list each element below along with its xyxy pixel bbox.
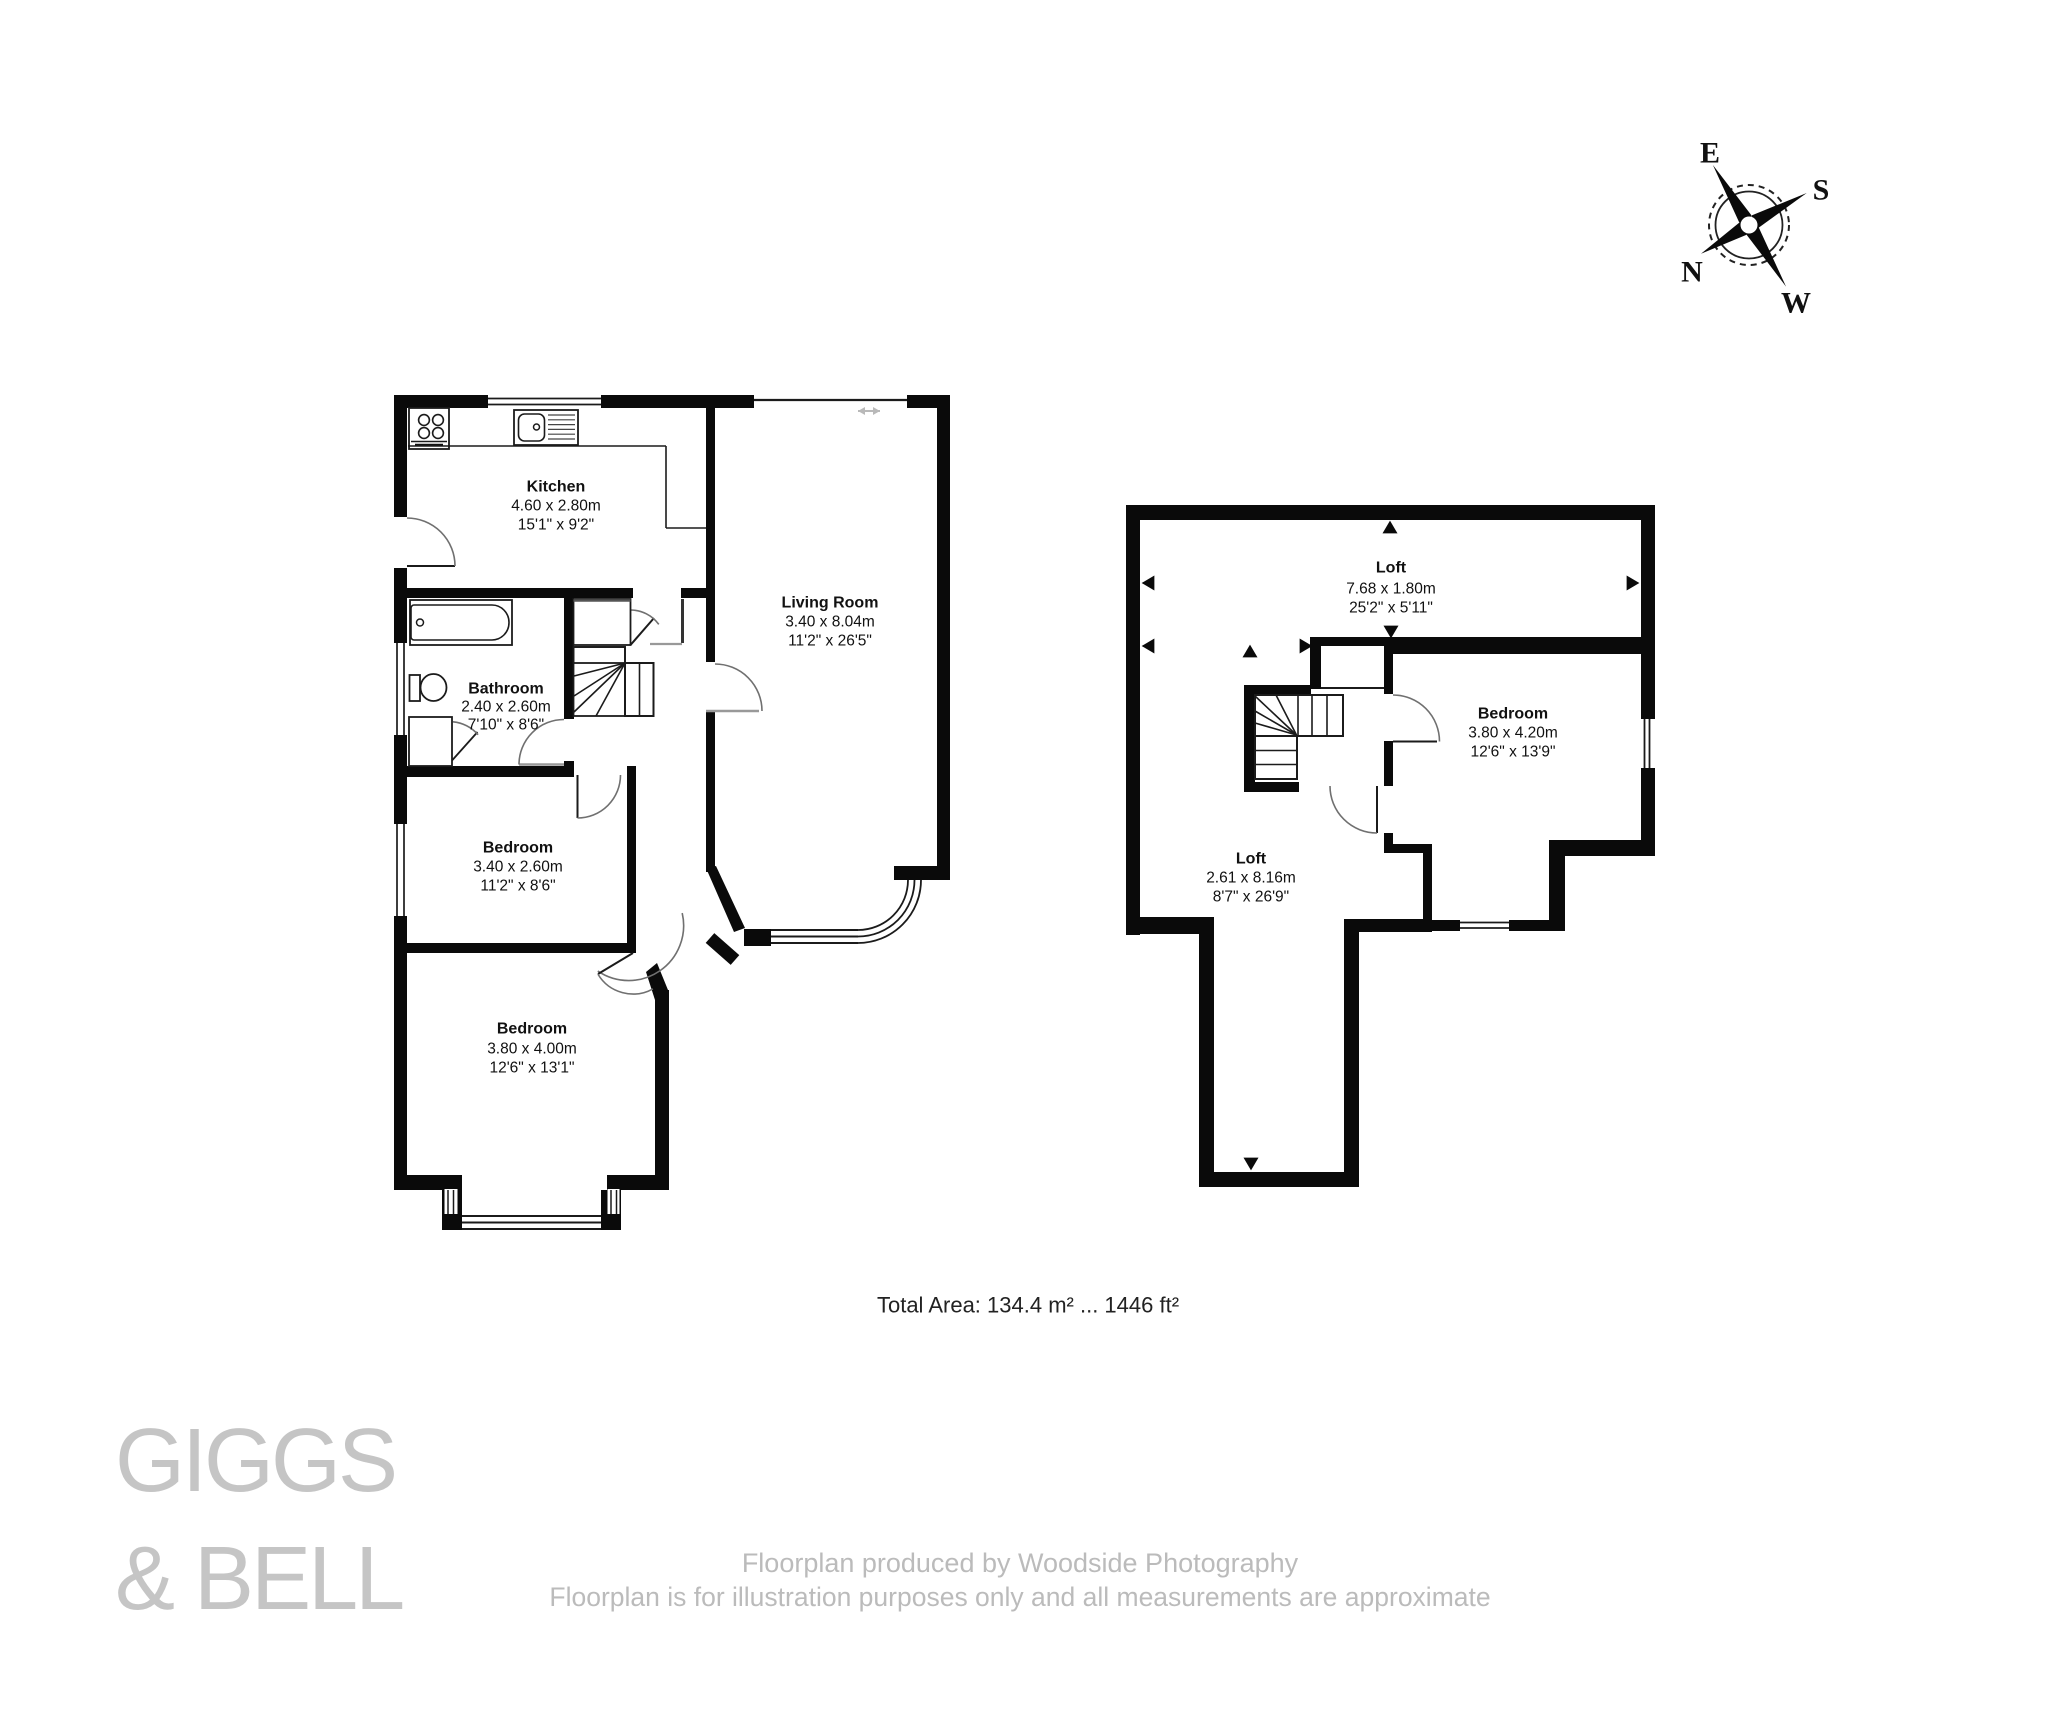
svg-text:3.40 x 8.04m: 3.40 x 8.04m (785, 614, 875, 631)
svg-text:S: S (1813, 174, 1830, 207)
svg-text:Bedroom: Bedroom (497, 1021, 567, 1038)
svg-text:11'2" x 8'6": 11'2" x 8'6" (480, 878, 555, 895)
svg-text:12'6" x 13'9": 12'6" x 13'9" (1470, 744, 1555, 761)
svg-text:Bedroom: Bedroom (1478, 706, 1548, 723)
svg-text:7'10" x 8'6": 7'10" x 8'6" (468, 717, 544, 734)
svg-text:Floorplan produced by Woodside: Floorplan produced by Woodside Photograp… (742, 1548, 1299, 1578)
svg-text:& BELL: & BELL (115, 1529, 403, 1629)
svg-text:3.80 x 4.20m: 3.80 x 4.20m (1468, 725, 1558, 742)
svg-text:12'6" x 13'1": 12'6" x 13'1" (489, 1060, 574, 1077)
svg-text:Loft: Loft (1236, 851, 1267, 868)
svg-text:Bedroom: Bedroom (483, 840, 553, 857)
svg-text:Floorplan is for illustration: Floorplan is for illustration purposes o… (549, 1582, 1490, 1612)
svg-text:2.40 x 2.60m: 2.40 x 2.60m (461, 699, 551, 716)
svg-text:15'1" x 9'2": 15'1" x 9'2" (518, 517, 594, 534)
svg-text:25'2" x 5'11": 25'2" x 5'11" (1349, 600, 1433, 617)
svg-text:Living Room: Living Room (782, 595, 879, 612)
svg-text:8'7" x 26'9": 8'7" x 26'9" (1213, 889, 1289, 906)
svg-text:Bathroom: Bathroom (468, 681, 544, 698)
svg-text:3.80 x 4.00m: 3.80 x 4.00m (487, 1041, 577, 1058)
svg-text:7.68 x 1.80m: 7.68 x 1.80m (1346, 581, 1436, 598)
svg-text:Total Area: 134.4 m² ... 1446: Total Area: 134.4 m² ... 1446 ft² (877, 1293, 1179, 1318)
svg-text:4.60 x 2.80m: 4.60 x 2.80m (511, 498, 601, 515)
svg-text:GIGGS: GIGGS (115, 1411, 395, 1511)
svg-text:E: E (1700, 137, 1720, 170)
svg-text:3.40 x 2.60m: 3.40 x 2.60m (473, 859, 563, 876)
svg-text:Loft: Loft (1376, 560, 1407, 577)
svg-text:N: N (1681, 256, 1703, 289)
svg-text:W: W (1781, 287, 1811, 320)
svg-text:Kitchen: Kitchen (527, 479, 586, 496)
svg-text:11'2" x 26'5": 11'2" x 26'5" (788, 633, 872, 650)
svg-text:2.61 x 8.16m: 2.61 x 8.16m (1206, 870, 1296, 887)
